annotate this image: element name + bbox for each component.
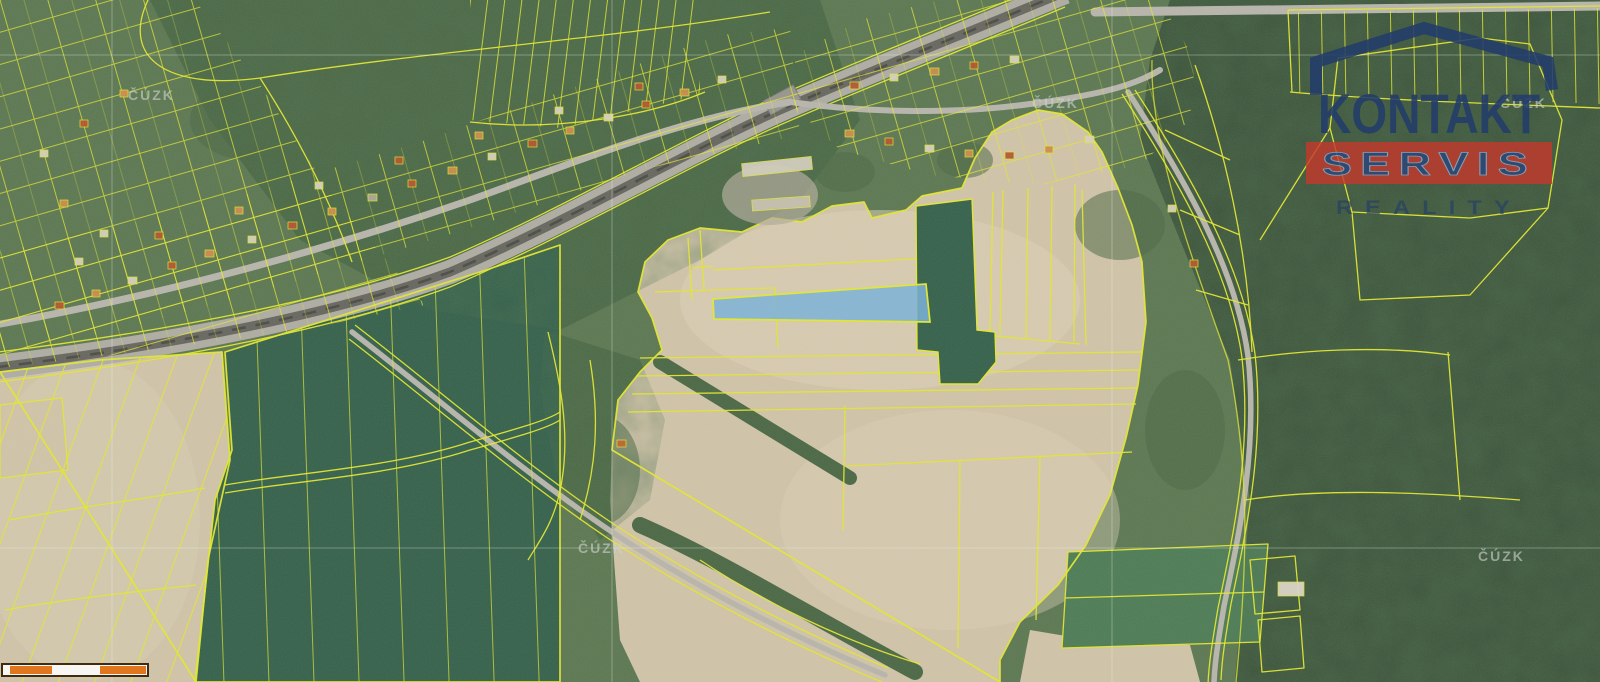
cuzk-watermark: ČÚZK [1478,547,1525,564]
cuzk-watermark: ČÚZK [128,86,175,103]
logo-title: KONTAKT [1318,82,1540,145]
cuzk-watermark: ČÚZK [578,539,625,556]
scalebar [2,664,148,676]
map-canvas[interactable]: ČÚZK ČÚZK ČÚZK ČÚZK ČÚZK KONTAKT SERVIS … [0,0,1600,682]
cadastral-map-viewport[interactable]: ČÚZK ČÚZK ČÚZK ČÚZK ČÚZK KONTAKT SERVIS … [0,0,1600,682]
cuzk-watermark: ČÚZK [1032,94,1079,111]
scalebar-segment [10,666,52,674]
logo-subtitle: REALITY [1336,198,1522,219]
scalebar-segment [100,666,146,674]
logo-banner-text: SERVIS [1322,146,1536,182]
scalebar-segment [4,666,10,674]
scalebar-segment [52,666,100,674]
